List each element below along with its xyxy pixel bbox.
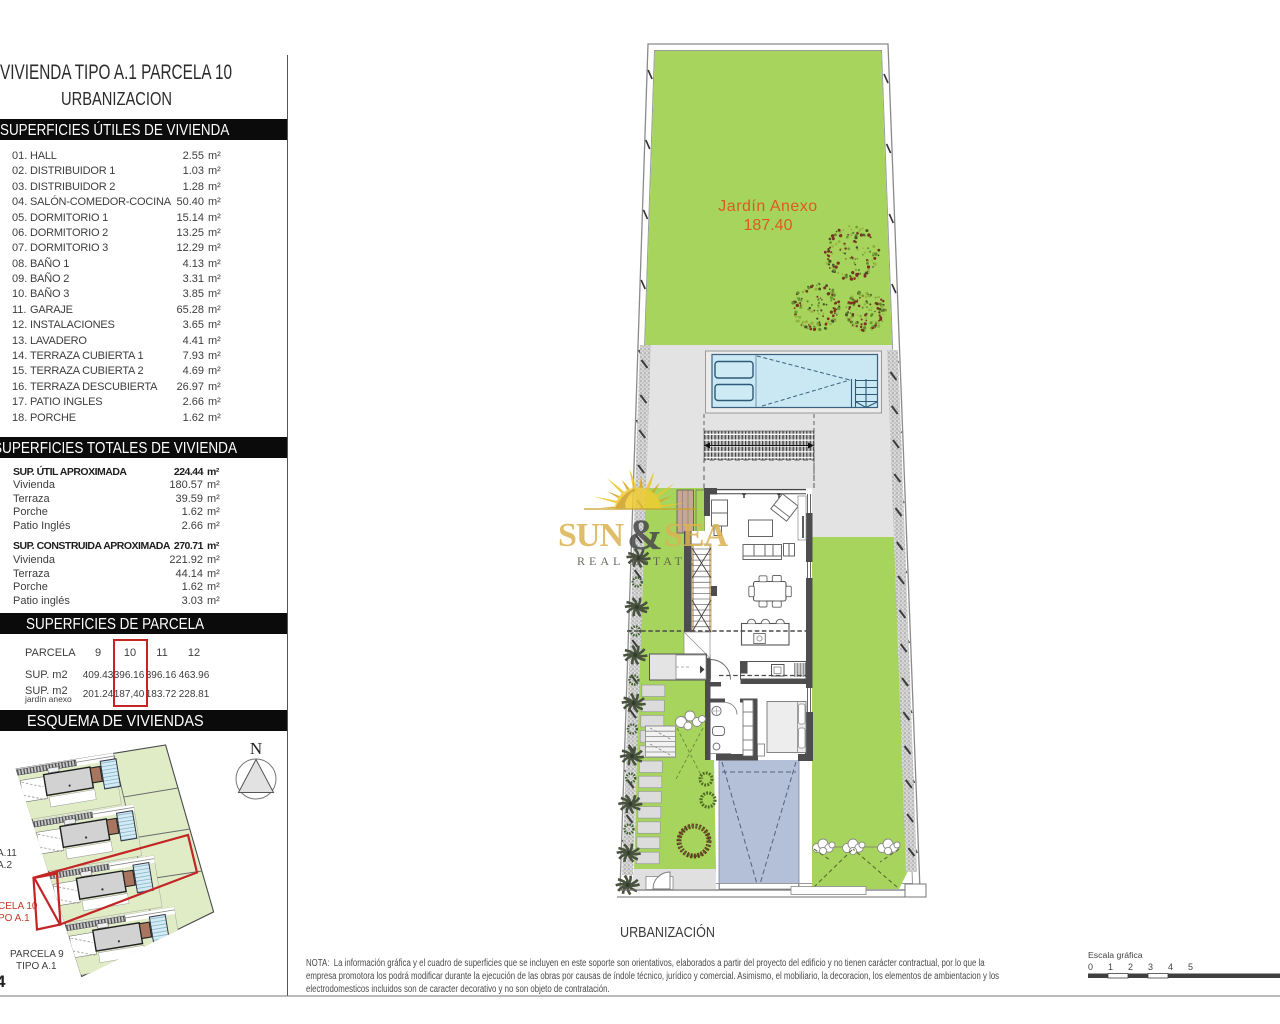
svg-text:N: N	[250, 739, 262, 758]
svg-text:SUN: SUN	[558, 517, 624, 554]
svg-text:REAL ESTATE: REAL ESTATE	[577, 554, 697, 568]
svg-text:5: 5	[1188, 962, 1193, 972]
svg-text:0: 0	[1088, 962, 1093, 972]
svg-text:3: 3	[1148, 962, 1153, 972]
svg-text:SEA: SEA	[664, 517, 729, 554]
svg-text:4: 4	[1168, 962, 1173, 972]
svg-text:URBANIZACIÓN: URBANIZACIÓN	[620, 924, 715, 941]
svg-text:1: 1	[1108, 962, 1113, 972]
svg-text:&: &	[627, 512, 663, 559]
svg-text:2: 2	[1128, 962, 1133, 972]
svg-text:Jardín Anexo: Jardín Anexo	[718, 198, 817, 215]
svg-text:187.40: 187.40	[744, 217, 793, 234]
svg-text:Escala gráfica: Escala gráfica	[1088, 950, 1143, 960]
